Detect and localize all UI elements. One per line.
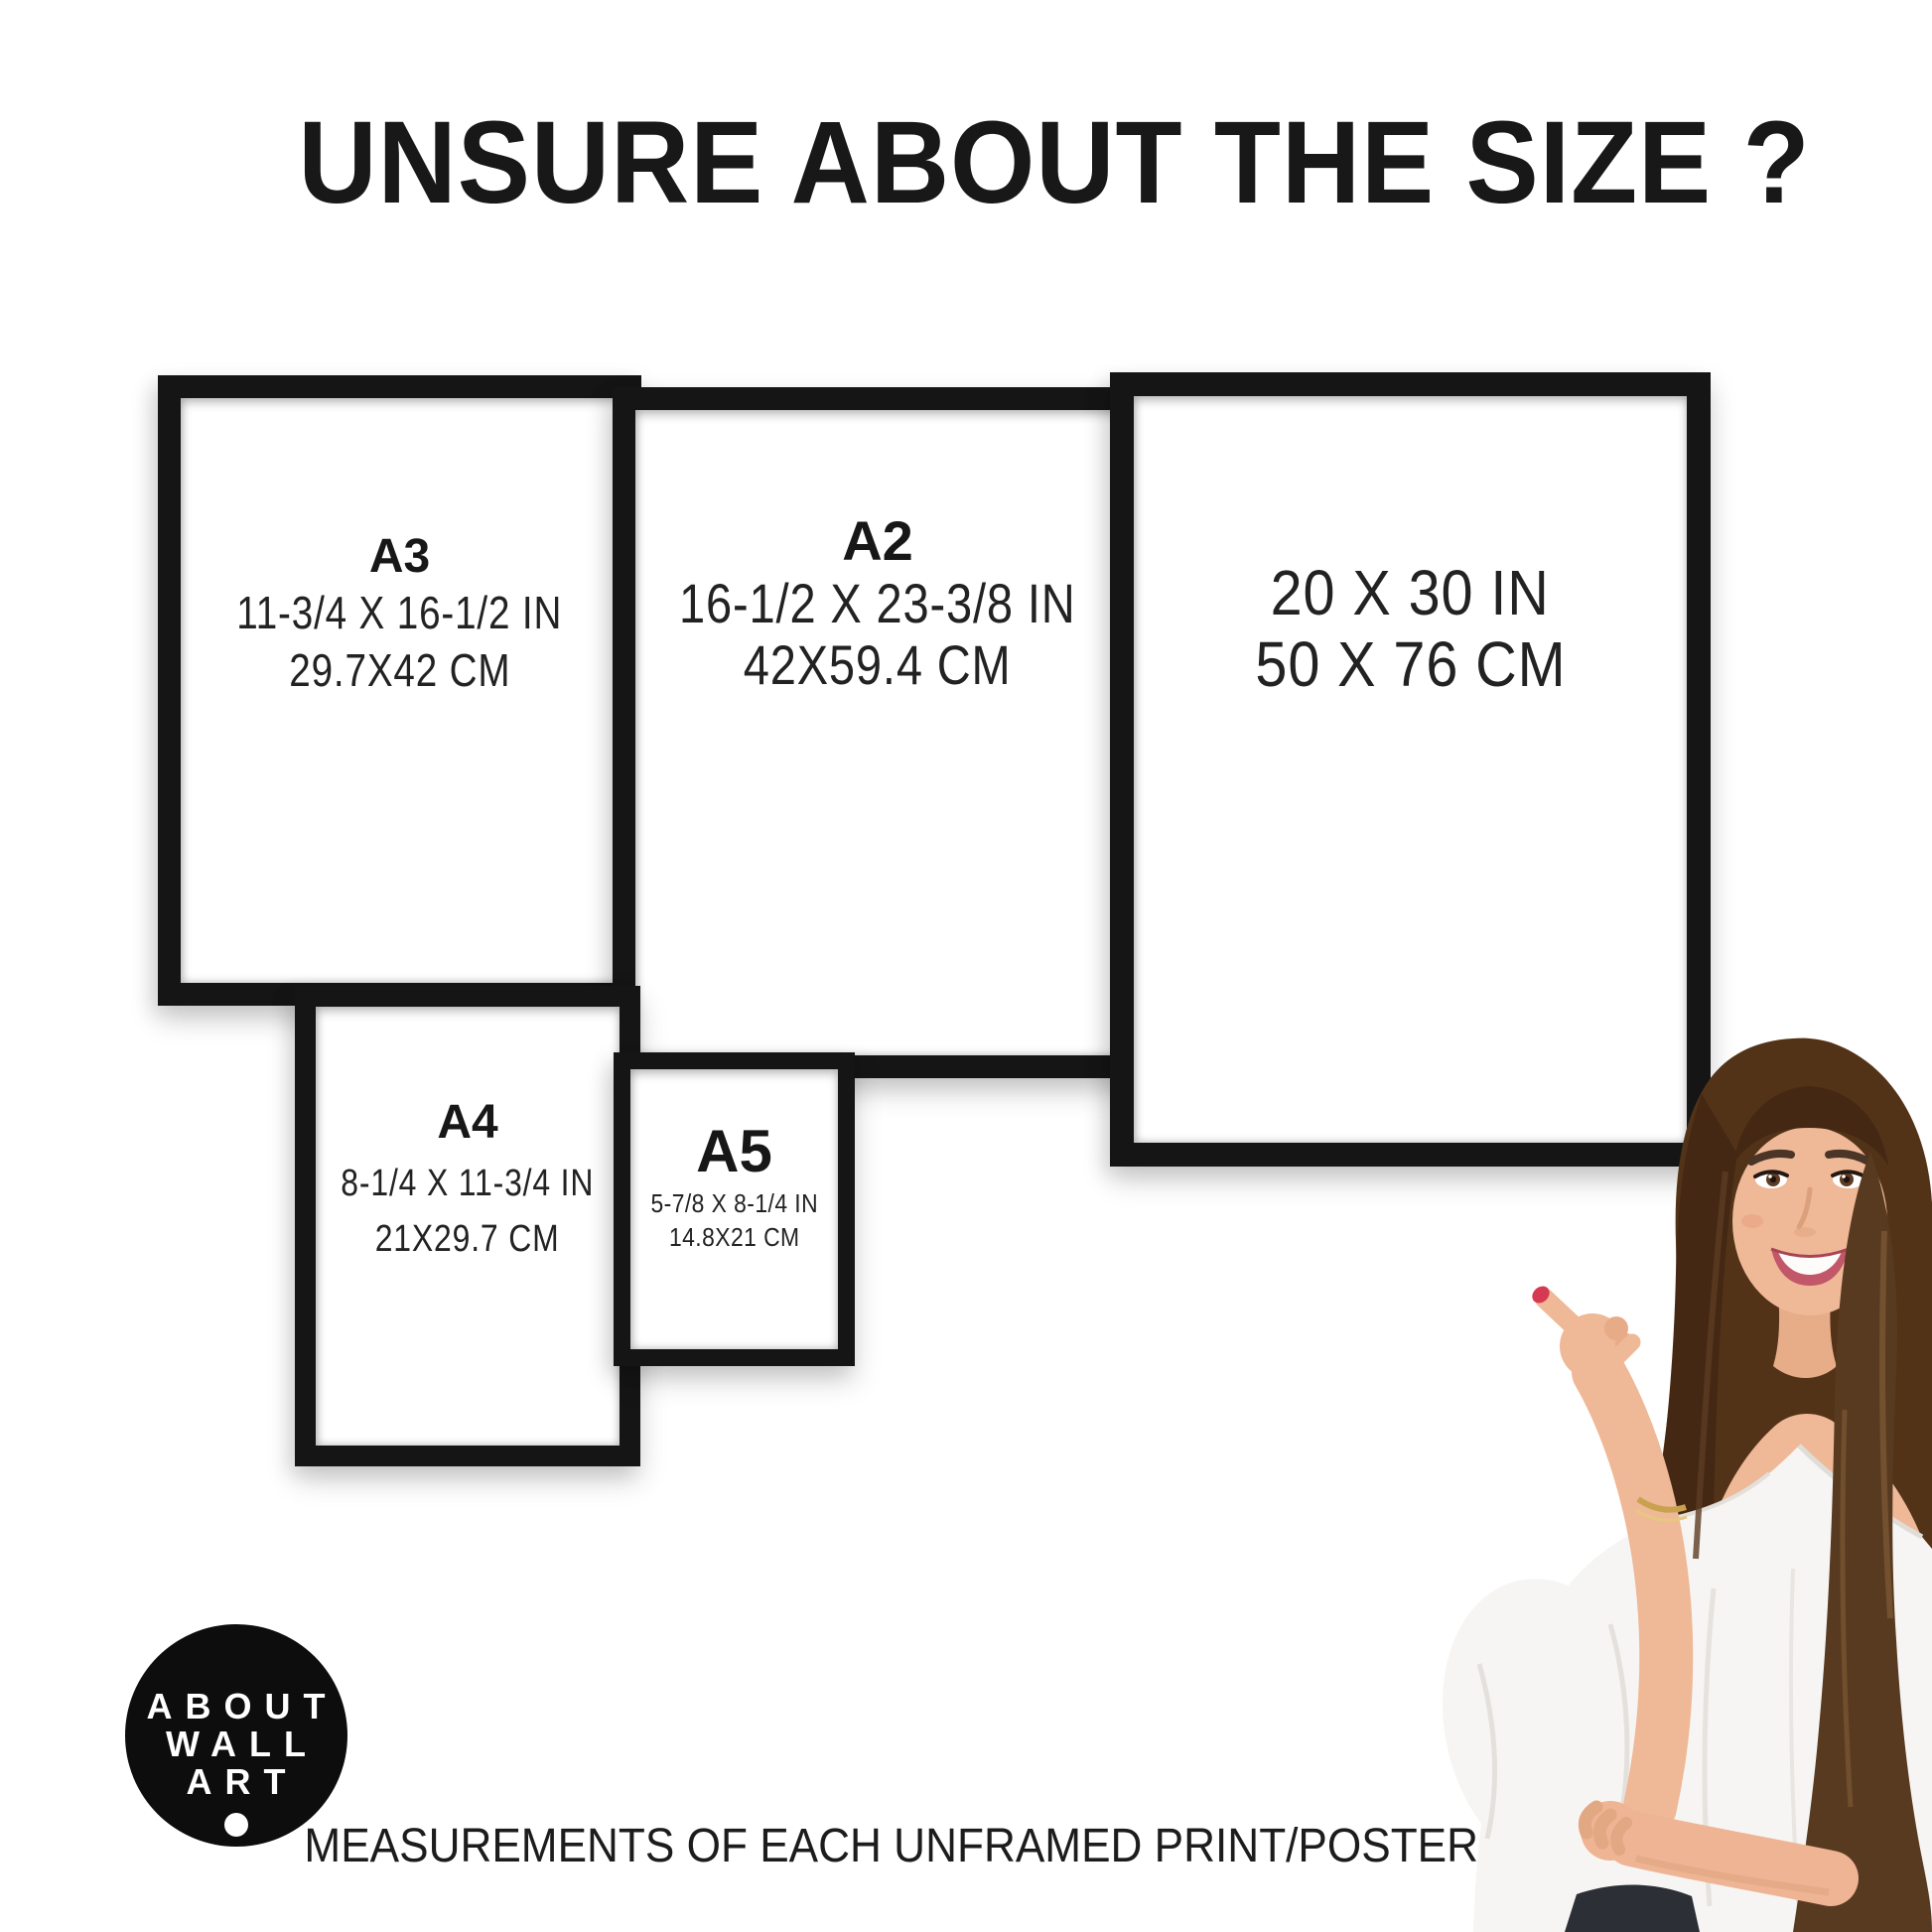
frame-a4-label: A4 bbox=[437, 1095, 497, 1150]
frame-a4-size-cm-text: 21X29.7 CM bbox=[375, 1217, 560, 1261]
frame-20x30-size-inches-text: 20 X 30 IN bbox=[1271, 557, 1550, 628]
frame-a5-size-cm-text: 14.8X21 CM bbox=[669, 1222, 800, 1252]
frame-a3-size-inches: 11-3/4 X 16-1/2 IN bbox=[206, 584, 593, 641]
frame-a2-size-cm: 42X59.4 CM bbox=[718, 634, 1036, 696]
frame-a2-label: A2 bbox=[842, 509, 913, 573]
frame-a2-size-inches-text: 16-1/2 X 23-3/8 IN bbox=[679, 573, 1076, 634]
frame-a3-size-cm: 29.7X42 CM bbox=[268, 641, 532, 699]
frame-a5-size-inches-text: 5-7/8 X 8-1/4 IN bbox=[650, 1188, 818, 1218]
frame-a4-size-inches-text: 8-1/4 X 11-3/4 IN bbox=[342, 1162, 595, 1205]
frame-20x30-size-inches: 20 X 30 IN bbox=[1255, 557, 1565, 628]
frame-a4-text: A4 8-1/4 X 11-3/4 IN 21X29.7 CM bbox=[316, 1007, 620, 1534]
frame-a2-text: A2 16-1/2 X 23-3/8 IN 42X59.4 CM bbox=[635, 410, 1120, 1155]
frame-a5-text: A5 5-7/8 X 8-1/4 IN 14.8X21 CM bbox=[630, 1069, 838, 1399]
frame-a2-size-cm-text: 42X59.4 CM bbox=[744, 634, 1012, 696]
model-index-finger bbox=[1545, 1299, 1579, 1330]
brand-logo: ABOUT WALL ART bbox=[125, 1624, 347, 1847]
model-jeans bbox=[1565, 1884, 1700, 1932]
frame-a5-size-cm: 14.8X21 CM bbox=[660, 1222, 809, 1252]
model-left-eye bbox=[1755, 1171, 1787, 1188]
frame-a3-label: A3 bbox=[369, 529, 430, 584]
frame-a4: A4 8-1/4 X 11-3/4 IN 21X29.7 CM bbox=[295, 986, 640, 1466]
frame-a3: A3 11-3/4 X 16-1/2 IN 29.7X42 CM bbox=[158, 375, 641, 1006]
frame-a4-size-inches: 8-1/4 X 11-3/4 IN bbox=[317, 1162, 619, 1205]
frame-a3-size-cm-text: 29.7X42 CM bbox=[289, 641, 510, 699]
size-guide-poster: UNSURE ABOUT THE SIZE ? A3 11-3/4 X 16-1… bbox=[0, 0, 1932, 1932]
frame-a2-size-inches: 16-1/2 X 23-3/8 IN bbox=[641, 573, 1114, 634]
model-photo bbox=[1237, 1033, 1932, 1932]
brand-logo-line-3: ART bbox=[187, 1763, 299, 1801]
frame-a4-size-cm: 21X29.7 CM bbox=[357, 1217, 577, 1261]
brand-logo-line-1: ABOUT bbox=[147, 1688, 339, 1725]
brand-logo-lines: ABOUT WALL ART bbox=[141, 1688, 333, 1801]
frame-a3-size-inches-text: 11-3/4 X 16-1/2 IN bbox=[236, 584, 562, 641]
frame-a5-label: A5 bbox=[696, 1119, 772, 1184]
frame-20x30-size-cm: 50 X 76 CM bbox=[1238, 628, 1584, 700]
frame-20x30-size-cm-text: 50 X 76 CM bbox=[1255, 628, 1566, 700]
frame-a5-size-inches: 5-7/8 X 8-1/4 IN bbox=[639, 1188, 830, 1218]
brand-logo-line-2: WALL bbox=[166, 1725, 319, 1763]
page-title-text: UNSURE ABOUT THE SIZE ? bbox=[298, 95, 1810, 230]
frame-a2: A2 16-1/2 X 23-3/8 IN 42X59.4 CM bbox=[613, 387, 1143, 1078]
frame-a5: A5 5-7/8 X 8-1/4 IN 14.8X21 CM bbox=[614, 1052, 855, 1366]
page-title: UNSURE ABOUT THE SIZE ? bbox=[241, 95, 1770, 244]
